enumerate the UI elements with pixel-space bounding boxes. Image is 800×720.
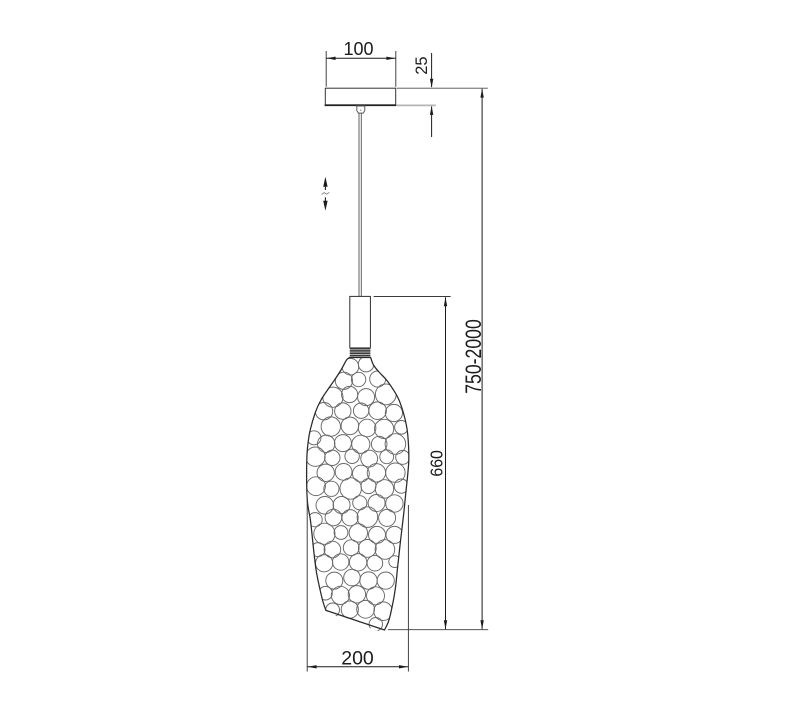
svg-text:200: 200 (341, 647, 374, 669)
svg-text:25: 25 (413, 56, 431, 74)
svg-text:660: 660 (427, 450, 447, 476)
svg-text:750-2000: 750-2000 (462, 319, 486, 394)
svg-text:100: 100 (343, 39, 373, 59)
